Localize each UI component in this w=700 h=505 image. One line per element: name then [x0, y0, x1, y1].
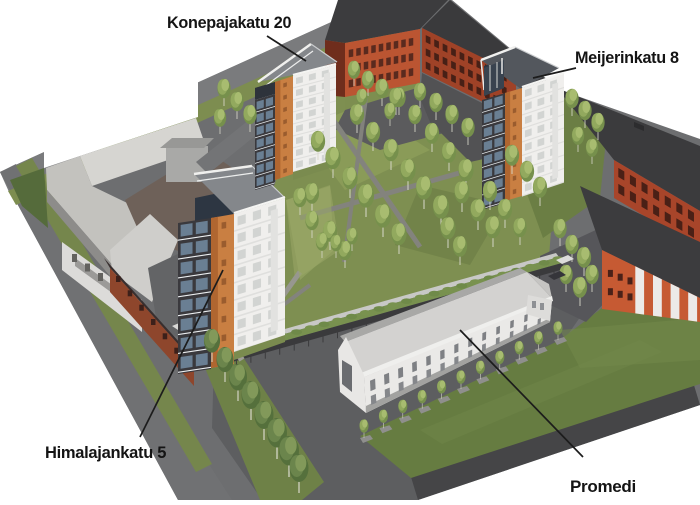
svg-text:Himalajankatu 5: Himalajankatu 5	[45, 444, 166, 462]
svg-text:Konepajakatu 20: Konepajakatu 20	[167, 14, 291, 32]
svg-text:Promedi: Promedi	[570, 477, 636, 496]
svg-text:Meijerinkatu 8: Meijerinkatu 8	[575, 49, 679, 67]
